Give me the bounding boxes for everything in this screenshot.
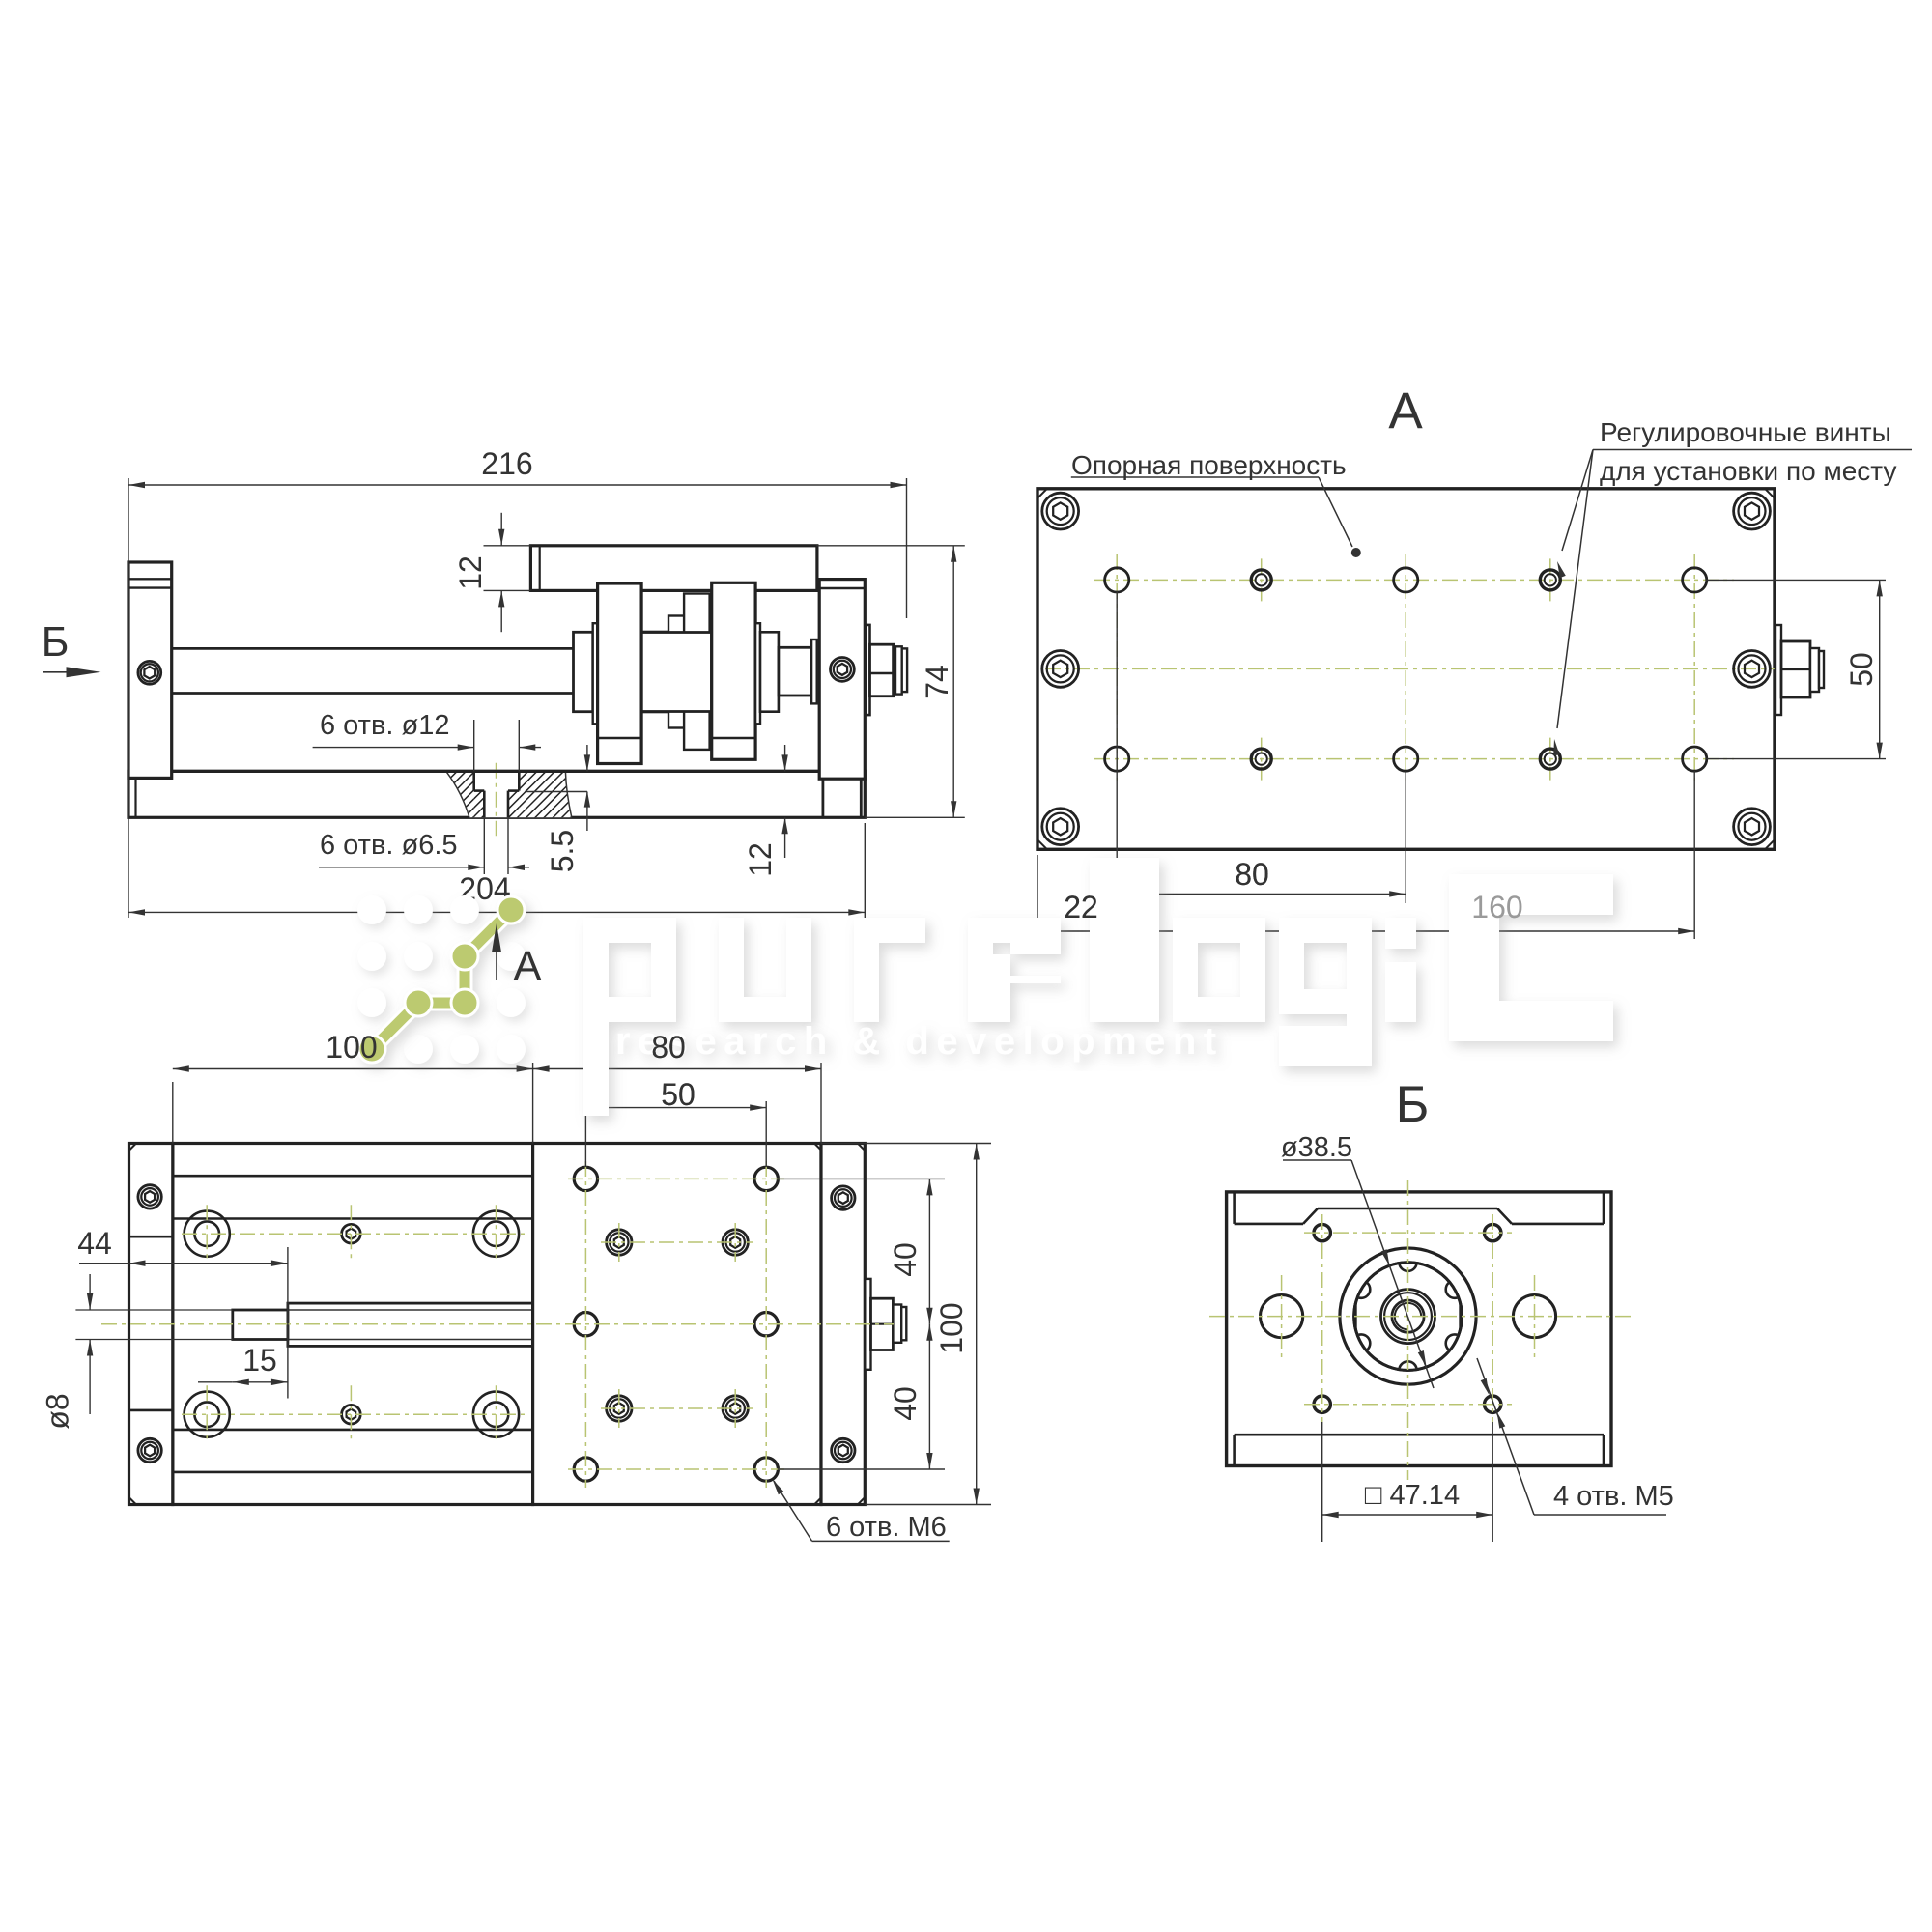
svg-text:А: А xyxy=(514,943,542,989)
svg-text:А: А xyxy=(1388,383,1423,440)
svg-text:5.5: 5.5 xyxy=(545,830,580,872)
svg-text:216: 216 xyxy=(481,446,532,481)
svg-text:Опорная поверхность: Опорная поверхность xyxy=(1071,450,1347,480)
svg-text:ø38.5: ø38.5 xyxy=(1281,1132,1352,1163)
svg-text:6 отв. ø6.5: 6 отв. ø6.5 xyxy=(320,830,458,861)
svg-text:15: 15 xyxy=(242,1343,277,1378)
svg-text:80: 80 xyxy=(1235,857,1269,892)
svg-text:4 отв. М5: 4 отв. М5 xyxy=(1553,1481,1674,1512)
svg-text:12: 12 xyxy=(743,842,778,877)
svg-text:44: 44 xyxy=(77,1226,112,1261)
svg-text:для установки по месту: для установки по месту xyxy=(1600,456,1896,486)
svg-text:22: 22 xyxy=(1064,890,1098,924)
svg-text:ø8: ø8 xyxy=(41,1393,75,1429)
svg-text:Б: Б xyxy=(1396,1076,1430,1133)
svg-text:100: 100 xyxy=(326,1030,377,1065)
svg-text:50: 50 xyxy=(1844,652,1879,687)
svg-text:6 отв. ø12: 6 отв. ø12 xyxy=(320,710,449,741)
svg-text:80: 80 xyxy=(651,1030,686,1065)
svg-text:6 отв. М6: 6 отв. М6 xyxy=(826,1512,947,1543)
svg-text:Регулировочные винты: Регулировочные винты xyxy=(1600,417,1891,447)
svg-text:100: 100 xyxy=(934,1302,969,1353)
svg-text:50: 50 xyxy=(661,1077,696,1112)
svg-text:40: 40 xyxy=(888,1242,923,1277)
svg-text:□ 47.14: □ 47.14 xyxy=(1365,1480,1460,1511)
svg-text:research & development: research & development xyxy=(615,1020,1224,1063)
svg-text:Б: Б xyxy=(42,618,70,666)
svg-text:74: 74 xyxy=(920,665,954,699)
svg-text:40: 40 xyxy=(888,1386,923,1421)
svg-text:12: 12 xyxy=(453,555,488,590)
svg-text:160: 160 xyxy=(1471,890,1522,924)
